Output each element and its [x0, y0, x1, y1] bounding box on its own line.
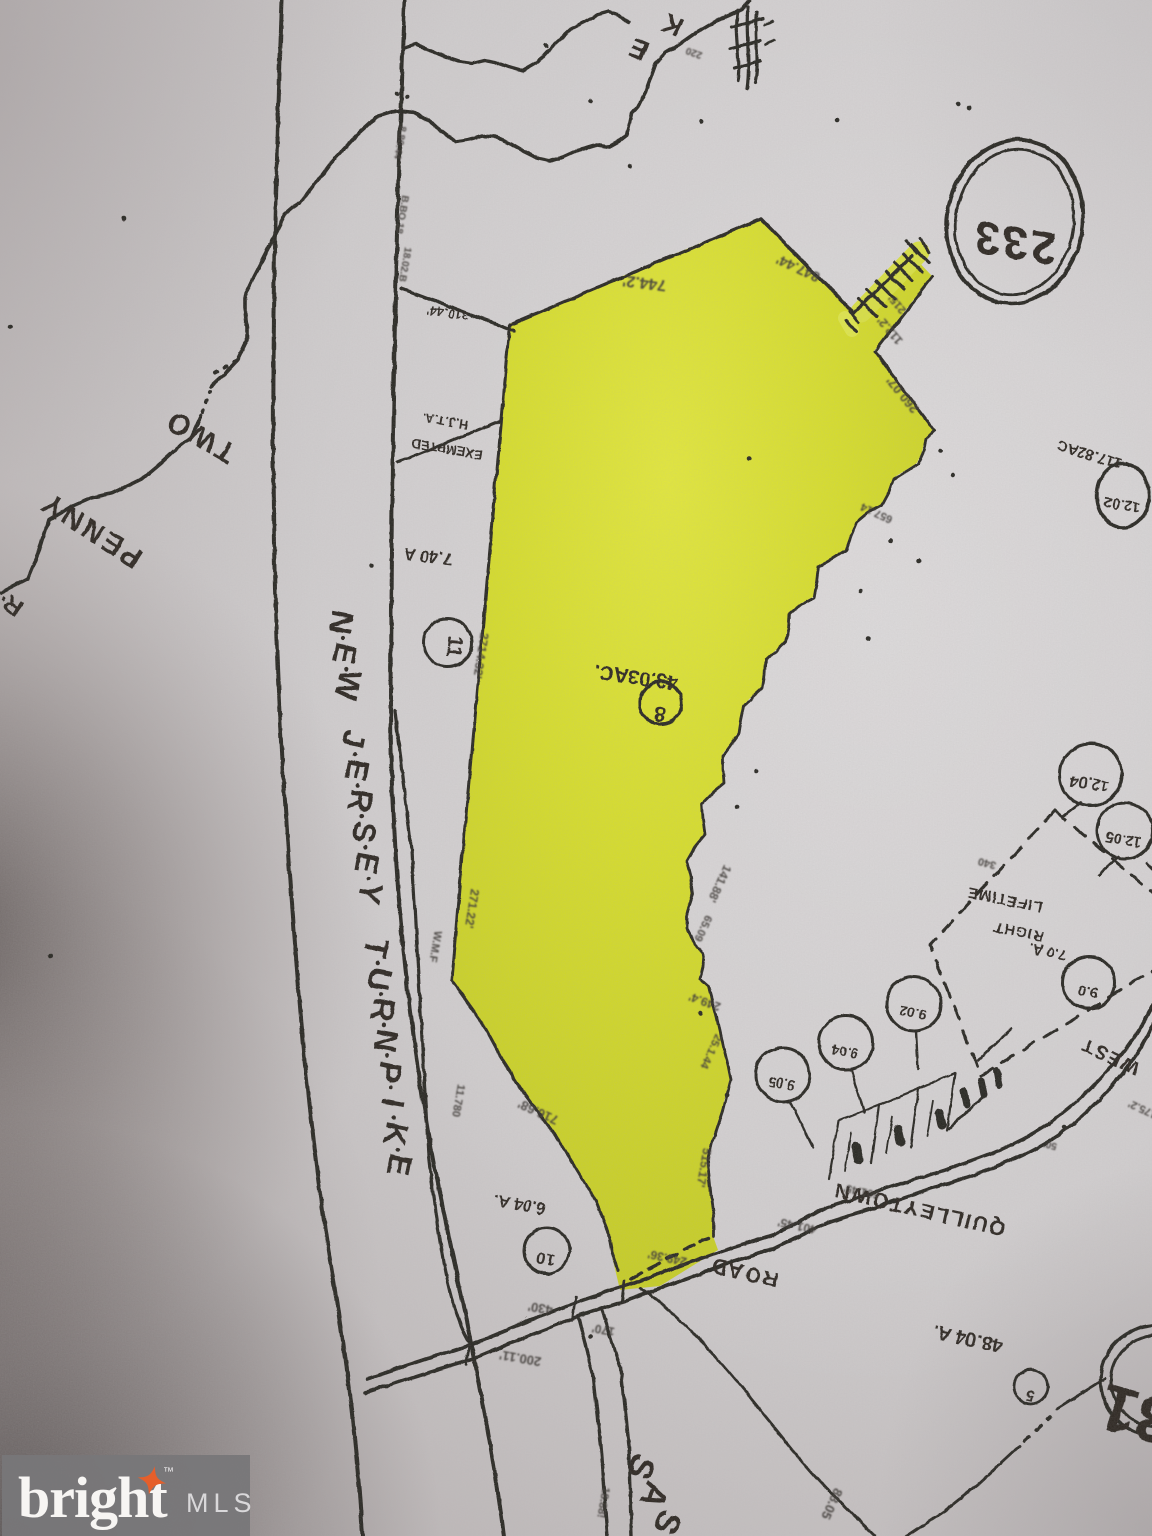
svg-text:bright: bright [18, 1465, 168, 1530]
svg-text:MLS: MLS [186, 1488, 257, 1518]
svg-text:™: ™ [163, 1466, 174, 1478]
